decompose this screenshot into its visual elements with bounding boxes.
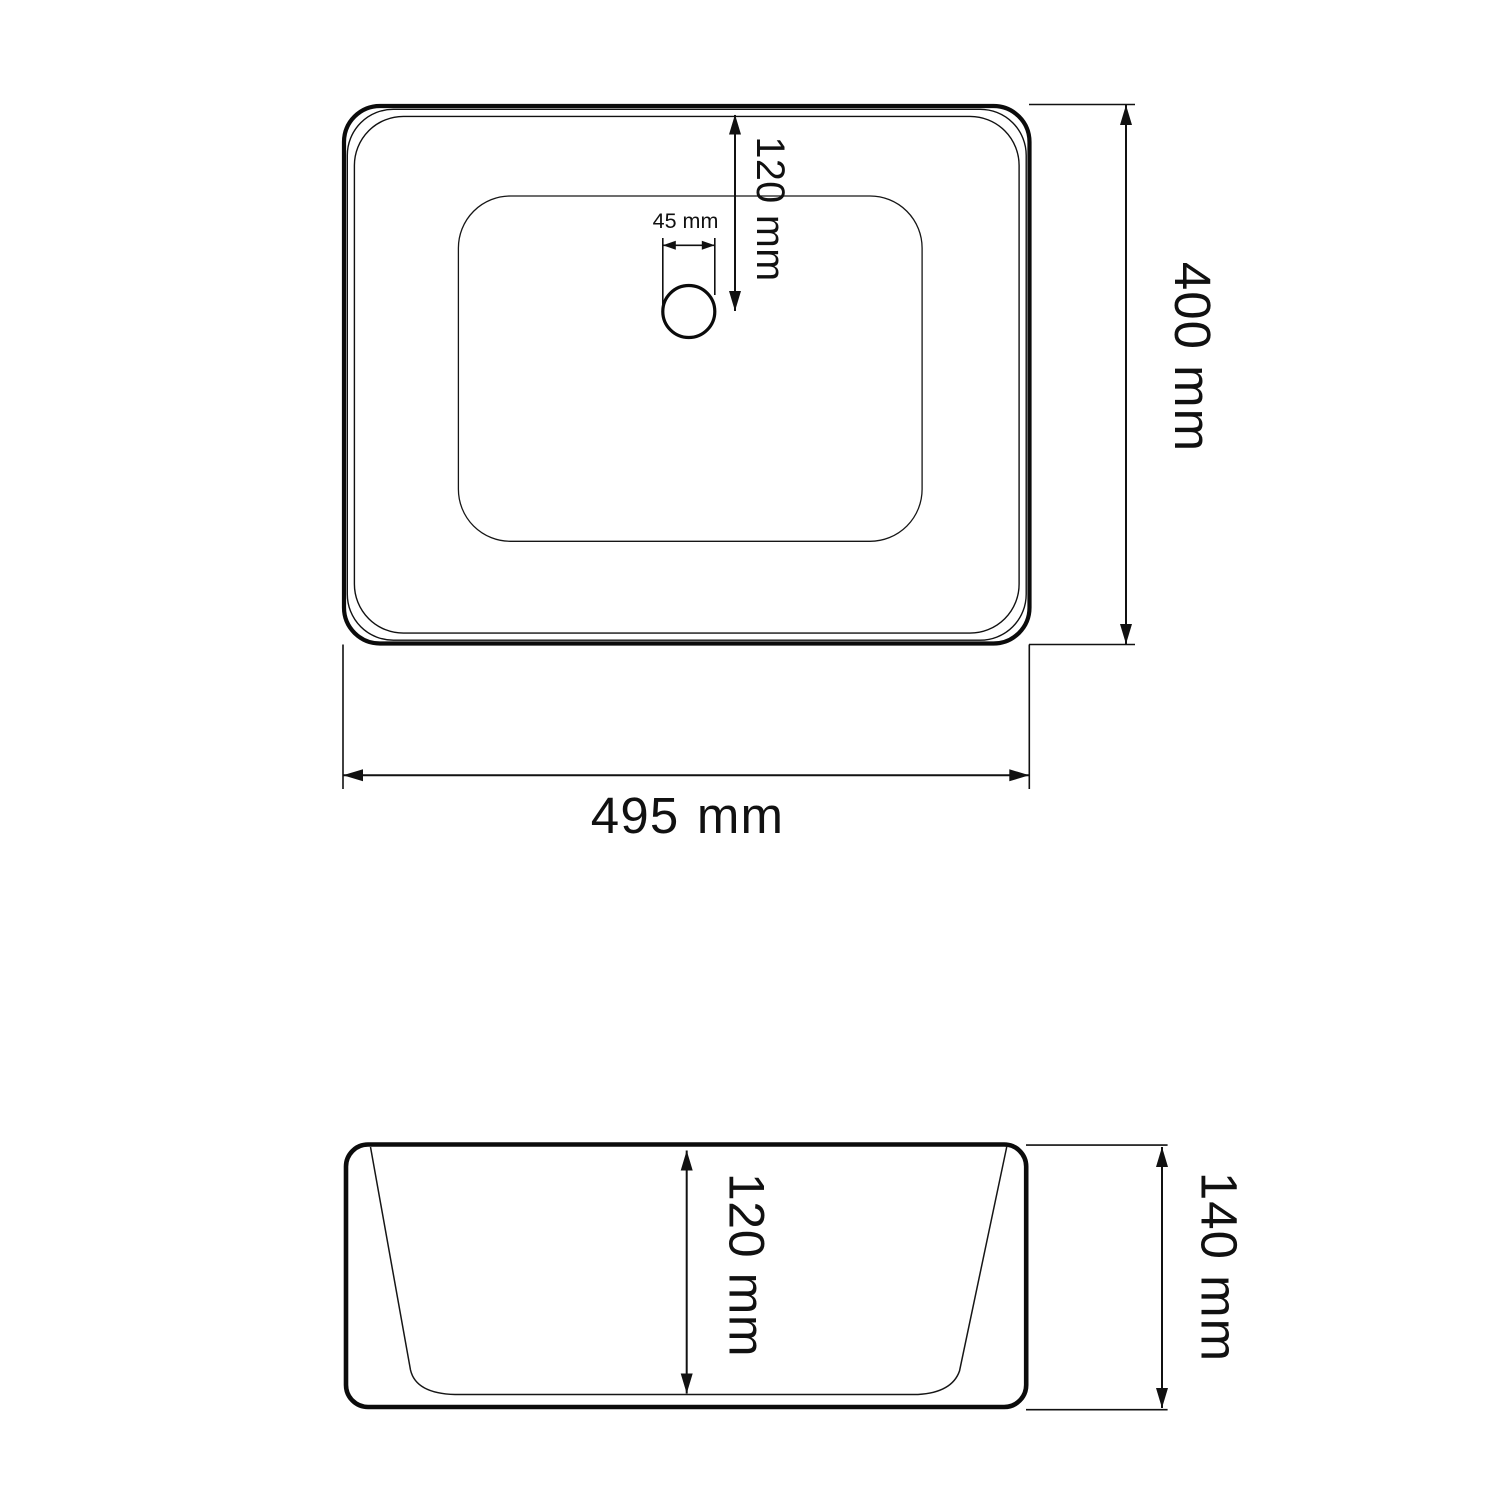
- svg-text:45 mm: 45 mm: [653, 209, 719, 233]
- svg-text:120 mm: 120 mm: [718, 1173, 774, 1357]
- svg-text:120 mm: 120 mm: [748, 136, 792, 281]
- svg-text:400 mm: 400 mm: [1164, 262, 1221, 452]
- svg-text:140 mm: 140 mm: [1191, 1172, 1248, 1362]
- svg-text:495 mm: 495 mm: [591, 787, 784, 844]
